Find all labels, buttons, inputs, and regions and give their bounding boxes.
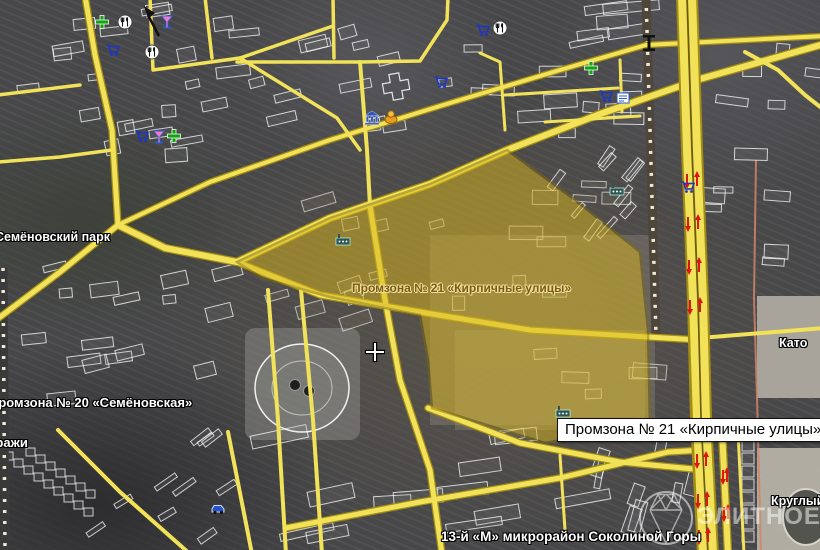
cart-icon[interactable]: [598, 88, 614, 104]
arrow-pointer-icon: [140, 4, 164, 40]
watermark-logo: [636, 488, 696, 548]
restaurant-icon[interactable]: [117, 14, 133, 30]
cart-icon[interactable]: [134, 128, 150, 144]
pharmacy-icon[interactable]: [166, 128, 182, 144]
pharmacy-icon[interactable]: [94, 14, 110, 30]
pharmacy-icon[interactable]: [583, 60, 599, 76]
restaurant-icon[interactable]: [492, 20, 508, 36]
cart-icon[interactable]: [105, 42, 121, 58]
map-canvas[interactable]: Семёновский парк Промзона № 20 «Семёновс…: [0, 0, 820, 550]
factory-icon[interactable]: [335, 232, 351, 248]
map-basemap: [0, 0, 820, 550]
watermark-text: ЭЛИТНОЕ.РУ: [697, 503, 820, 531]
cross-shaped-building: [381, 71, 411, 101]
car-service-icon[interactable]: [210, 500, 226, 516]
cart-icon[interactable]: [680, 179, 696, 195]
stadium: [255, 344, 349, 432]
cart-icon[interactable]: [475, 22, 491, 38]
bank-icon[interactable]: [364, 110, 380, 126]
park-label: Семёновский парк: [0, 230, 110, 244]
kiosk-icon[interactable]: [615, 90, 631, 106]
zone20-label: Промзона № 20 «Семёновская»: [0, 395, 192, 410]
dome-icon[interactable]: [383, 109, 399, 125]
kato-label: Като: [779, 336, 807, 350]
zone21-tooltip: Промзона № 21 «Кирпичные улицы»: [557, 418, 820, 442]
factory-icon[interactable]: [609, 182, 625, 198]
cart-icon[interactable]: [433, 74, 449, 90]
zone21-map-label: Промзона № 21 «Кирпичные улицы»: [352, 281, 571, 295]
garages-label: Гаражи: [0, 435, 28, 450]
restaurant-icon[interactable]: [144, 44, 160, 60]
crosshair-cursor-icon: [364, 341, 386, 363]
bar-icon[interactable]: [151, 129, 167, 145]
